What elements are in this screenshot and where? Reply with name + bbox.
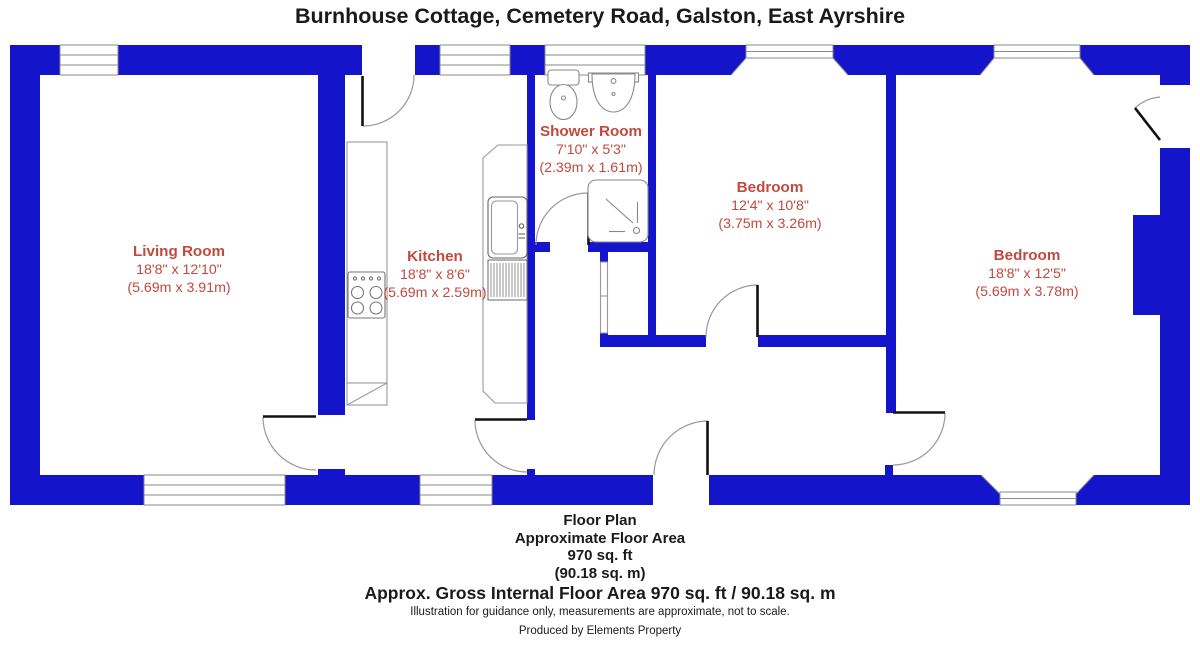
shower-tray-icon <box>588 180 648 242</box>
gross-internal-area: Approx. Gross Internal Floor Area 970 sq… <box>0 585 1200 603</box>
room-label-kitchen: Kitchen 18'8" x 8'6" (5.69m x 2.59m) <box>383 248 486 301</box>
window <box>440 45 510 75</box>
svg-text:(3.75m x 3.26m): (3.75m x 3.26m) <box>718 216 821 232</box>
svg-text:(2.39m x 1.61m): (2.39m x 1.61m) <box>539 160 642 176</box>
window <box>144 475 285 505</box>
wash-basin-icon <box>589 73 639 112</box>
room-label-shower-room: Shower Room 7'10" x 5'3" (2.39m x 1.61m) <box>539 123 642 176</box>
approx-area-label: Approximate Floor Area <box>0 530 1200 548</box>
toilet-icon <box>548 70 579 120</box>
svg-text:12'4" x 10'8": 12'4" x 10'8" <box>731 198 809 214</box>
wall-living-kitchen <box>318 75 345 415</box>
fixtures <box>347 70 648 405</box>
svg-text:Shower Room: Shower Room <box>540 123 642 140</box>
chimney-breast <box>1133 215 1160 315</box>
footer: Floor Plan Approximate Floor Area 970 sq… <box>0 512 1200 641</box>
svg-text:Living Room: Living Room <box>133 243 225 260</box>
svg-text:Kitchen: Kitchen <box>407 248 463 265</box>
window <box>980 45 1094 75</box>
wall-hall-top-left <box>600 335 706 347</box>
door-arc <box>475 420 527 472</box>
entrance-door-leaf <box>1135 108 1160 140</box>
area-sqm: (90.18 sq. m) <box>0 565 1200 583</box>
room-label-bedroom-1: Bedroom 12'4" x 10'8" (3.75m x 3.26m) <box>718 179 821 232</box>
window <box>731 45 848 75</box>
wall-shower-bedroom1 <box>648 75 656 347</box>
door-arc <box>706 285 758 337</box>
window <box>420 475 492 505</box>
floor-plan-page: { "title": "Burnhouse Cottage, Cemetery … <box>0 0 1200 648</box>
hob-icon <box>348 272 385 318</box>
room-label-bedroom-2: Bedroom 18'8" x 12'5" (5.69m x 3.78m) <box>975 247 1078 300</box>
wall-bedroom-divider <box>886 75 896 413</box>
window <box>60 45 118 75</box>
door-arc <box>1135 97 1160 108</box>
drainer-icon <box>488 260 527 300</box>
door-arc <box>893 413 945 465</box>
floor-plan-heading: Floor Plan <box>0 512 1200 530</box>
svg-text:(5.69m x 3.78m): (5.69m x 3.78m) <box>975 284 1078 300</box>
svg-text:(5.69m x 2.59m): (5.69m x 2.59m) <box>383 285 486 301</box>
door-arc <box>536 193 588 245</box>
disclaimer: Illustration for guidance only, measurem… <box>0 603 1200 622</box>
svg-text:Bedroom: Bedroom <box>994 247 1061 264</box>
svg-text:(5.69m x 3.91m): (5.69m x 3.91m) <box>127 280 230 296</box>
door-arc <box>263 417 316 470</box>
wall-shower-bottom <box>588 242 655 252</box>
svg-text:18'8" x 12'10": 18'8" x 12'10" <box>136 262 222 278</box>
producer-credit: Produced by Elements Property <box>0 622 1200 641</box>
svg-text:Bedroom: Bedroom <box>737 179 804 196</box>
svg-text:18'8" x 8'6": 18'8" x 8'6" <box>400 267 470 283</box>
wall-hall-top-right <box>758 335 886 347</box>
cupboard-door-icon <box>601 262 608 333</box>
svg-text:18'8" x 12'5": 18'8" x 12'5" <box>988 266 1066 282</box>
room-label-living-room: Living Room 18'8" x 12'10" (5.69m x 3.91… <box>127 243 230 296</box>
svg-text:7'10" x 5'3": 7'10" x 5'3" <box>556 142 626 158</box>
area-sqft: 970 sq. ft <box>0 547 1200 565</box>
door-arc <box>654 421 708 475</box>
kitchen-sink-icon <box>488 197 527 258</box>
entrance-door-frame <box>1160 86 1182 148</box>
door-arc <box>363 75 414 126</box>
